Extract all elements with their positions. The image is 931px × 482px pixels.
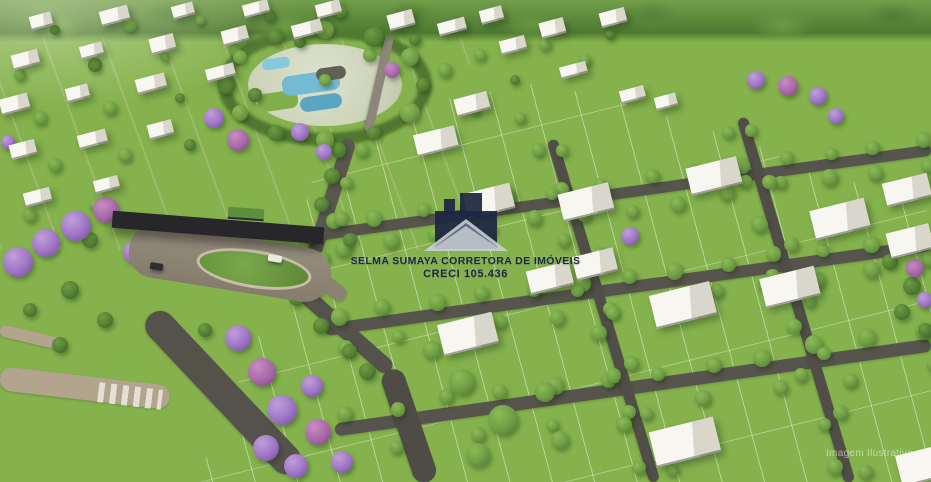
tree (550, 310, 566, 326)
tree (666, 464, 679, 477)
tree (471, 427, 486, 442)
tree (510, 75, 521, 86)
tree (363, 48, 377, 62)
tree (827, 459, 843, 475)
tree (773, 380, 788, 395)
tree (632, 461, 646, 475)
tree (416, 78, 430, 92)
tree (61, 281, 79, 299)
watermark: SELMA SUMAYA CORRETORA DE IMÓVEIS CRECI … (0, 193, 931, 280)
jacaranda-tree (828, 108, 844, 124)
tree (88, 58, 101, 71)
jacaranda-tree (301, 375, 323, 397)
tree (391, 402, 405, 416)
tree (843, 373, 858, 388)
tree (400, 103, 420, 123)
tree (319, 74, 331, 86)
house (654, 92, 679, 110)
tree (374, 299, 390, 315)
house (559, 61, 588, 80)
tree (423, 341, 441, 359)
tree (488, 405, 518, 435)
tree (474, 49, 486, 61)
tree (745, 124, 757, 136)
tree (466, 443, 490, 467)
tree (821, 169, 838, 186)
jacaranda-tree (747, 71, 765, 89)
tree (858, 328, 876, 346)
tree (921, 159, 931, 173)
tree (342, 344, 357, 359)
tree (868, 165, 883, 180)
jacaranda-tree (809, 87, 827, 105)
tree (762, 175, 777, 190)
jacaranda-tree (305, 419, 331, 445)
tree (535, 382, 555, 402)
tree (606, 368, 621, 383)
tree (605, 30, 615, 40)
tree (340, 177, 353, 190)
tree (390, 441, 403, 454)
tree (268, 29, 284, 45)
aerial-masterplan-render: SELMA SUMAYA CORRETORA DE IMÓVEIS CRECI … (0, 0, 931, 482)
house (619, 85, 647, 104)
tree (817, 347, 831, 361)
tree (50, 25, 60, 35)
jacaranda-tree (778, 76, 798, 96)
tree (624, 356, 639, 371)
tree (645, 169, 659, 183)
tree (248, 88, 261, 101)
tree (818, 418, 831, 431)
tree (894, 304, 910, 320)
tree (918, 323, 931, 337)
jacaranda-tree (227, 129, 249, 151)
tree (539, 39, 551, 51)
tree (722, 126, 736, 140)
tree (337, 406, 353, 422)
jacaranda-tree (316, 144, 332, 160)
tree (492, 384, 507, 399)
watermark-line1: SELMA SUMAYA CORRETORA DE IMÓVEIS (0, 255, 931, 267)
tree (364, 27, 384, 47)
tree (438, 63, 451, 76)
tree (706, 357, 722, 373)
tree (786, 319, 801, 334)
jacaranda-tree (384, 62, 400, 78)
tree (616, 417, 631, 432)
tree (313, 318, 329, 334)
tree (825, 148, 838, 161)
tree (794, 368, 808, 382)
jacaranda-tree (284, 454, 308, 478)
jacaranda-tree (917, 292, 931, 308)
tree (52, 337, 68, 353)
jacaranda-tree (204, 108, 224, 128)
tree (916, 132, 931, 148)
tree (865, 141, 880, 156)
tree (23, 303, 37, 317)
corner-note: Imagem Ilustrativa (826, 448, 913, 459)
tree (753, 349, 771, 367)
tree (449, 369, 475, 395)
jacaranda-tree (225, 325, 251, 351)
tree (556, 144, 569, 157)
tree (640, 407, 653, 420)
tree (546, 419, 558, 431)
tree (103, 101, 117, 115)
jacaranda-tree (248, 358, 276, 386)
tree (695, 390, 711, 406)
jacaranda-tree (253, 435, 279, 461)
tree (494, 315, 508, 329)
tree (551, 431, 569, 449)
tree (198, 323, 212, 337)
jacaranda-tree (331, 451, 353, 473)
jacaranda-tree (267, 395, 297, 425)
tree (118, 148, 132, 162)
tree (514, 112, 526, 124)
watermark-line2: CRECI 105.436 (0, 268, 931, 280)
tree (392, 330, 405, 343)
tree (429, 294, 446, 311)
jacaranda-tree (291, 123, 309, 141)
tree (97, 312, 113, 328)
house-logo-icon (418, 193, 514, 259)
tree (651, 367, 665, 381)
